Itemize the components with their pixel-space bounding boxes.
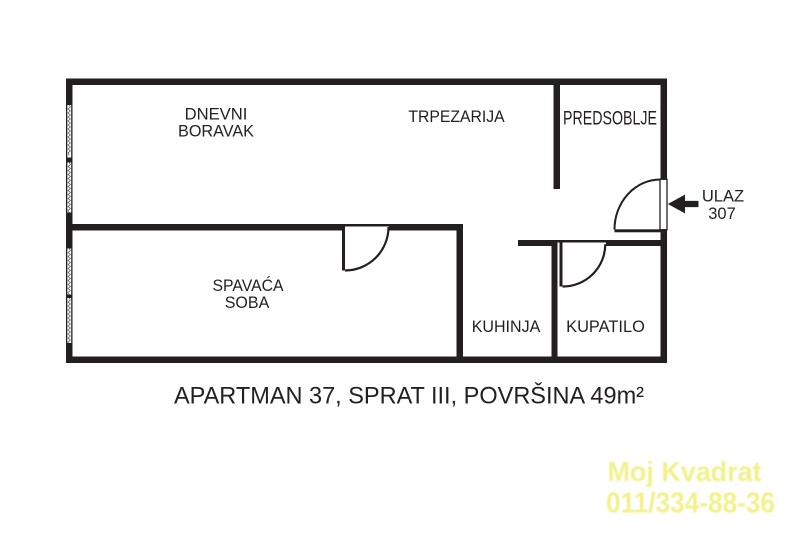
svg-text:307: 307	[708, 204, 736, 223]
svg-text:KUPATILO: KUPATILO	[566, 317, 645, 336]
svg-text:SOBA: SOBA	[225, 293, 270, 312]
svg-text:011/334-88-36: 011/334-88-36	[606, 488, 775, 520]
svg-text:BORAVAK: BORAVAK	[178, 122, 255, 141]
svg-text:PREDSOBLJE: PREDSOBLJE	[563, 109, 657, 130]
svg-text:APARTMAN 37, SPRAT III, POVRŠI: APARTMAN 37, SPRAT III, POVRŠINA 49m²	[174, 382, 644, 410]
svg-text:TRPEZARIJA: TRPEZARIJA	[408, 107, 505, 126]
svg-text:Moj Kvadrat: Moj Kvadrat	[608, 456, 762, 487]
svg-text:ULAZ: ULAZ	[702, 186, 744, 205]
svg-text:KUHINJA: KUHINJA	[472, 317, 541, 336]
